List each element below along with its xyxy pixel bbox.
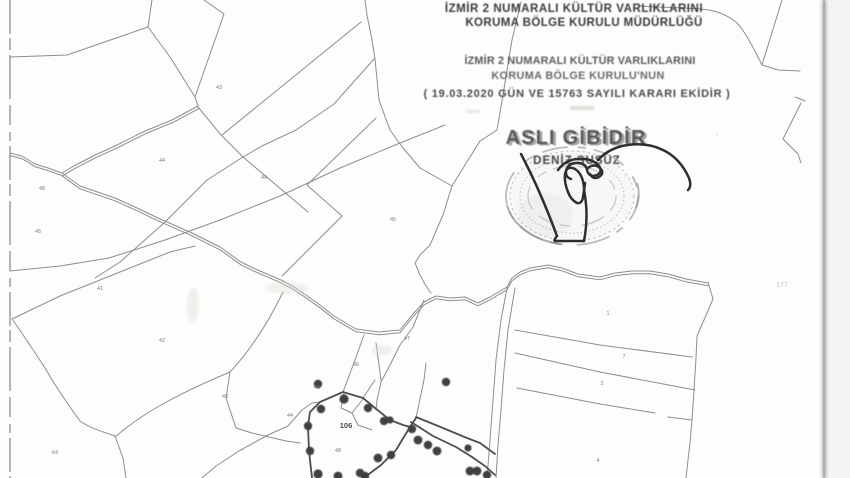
svg-text:44: 44 (287, 413, 293, 419)
svg-text:2: 2 (601, 381, 604, 387)
svg-text:4: 4 (597, 458, 600, 464)
svg-text:7: 7 (623, 354, 626, 360)
svg-text:46: 46 (353, 362, 359, 368)
svg-text:177: 177 (776, 282, 788, 289)
svg-text:64: 64 (52, 450, 58, 456)
svg-text:İZMİR 2 NUMARALI KÜLTÜR VARLIK: İZMİR 2 NUMARALI KÜLTÜR VARLIKLARINI (464, 54, 695, 67)
svg-text:48: 48 (335, 448, 341, 454)
svg-text:( 19.03.2020 GÜN VE 15763 SAYI: ( 19.03.2020 GÜN VE 15763 SAYILI KARARI … (423, 87, 730, 100)
svg-text:45: 45 (390, 217, 396, 223)
svg-text:47: 47 (404, 336, 410, 342)
svg-text:44: 44 (159, 158, 165, 164)
svg-text:43: 43 (216, 85, 222, 91)
svg-text:44: 44 (261, 175, 267, 181)
svg-text:-: - (716, 132, 718, 138)
svg-text:41: 41 (97, 286, 103, 292)
svg-text:45: 45 (35, 229, 41, 235)
svg-text:İZMİR 2 NUMARALI KÜLTÜR VARLIK: İZMİR 2 NUMARALI KÜLTÜR VARLIKLARINI (445, 2, 703, 15)
svg-text:45: 45 (314, 385, 320, 391)
svg-text:KORUMA BÖLGE KURULU'NUN: KORUMA BÖLGE KURULU'NUN (491, 69, 664, 82)
svg-text:43: 43 (222, 394, 228, 400)
svg-text:42: 42 (159, 338, 165, 344)
svg-text:KORUMA BÖLGE KURULU MÜDÜRLÜĞÜ: KORUMA BÖLGE KURULU MÜDÜRLÜĞÜ (465, 16, 702, 29)
svg-text:48: 48 (39, 186, 45, 192)
svg-text:1: 1 (607, 311, 610, 317)
svg-text:106: 106 (340, 421, 353, 430)
